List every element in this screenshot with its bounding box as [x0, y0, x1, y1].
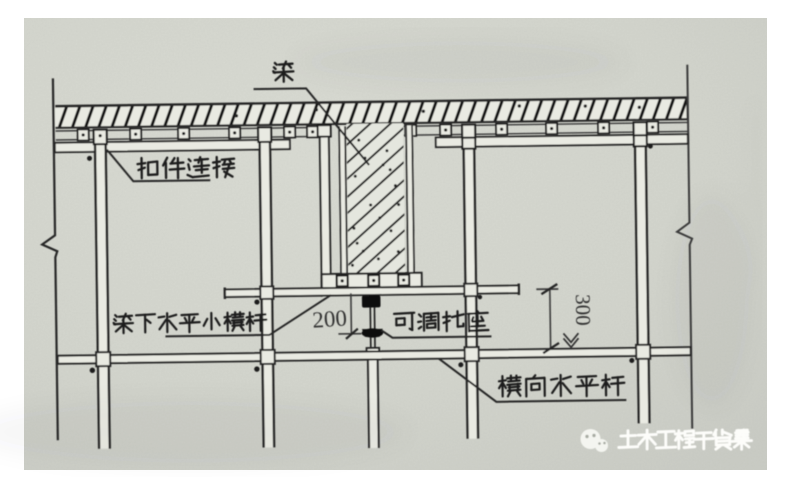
svg-text:200: 200 — [312, 305, 348, 332]
svg-text:300: 300 — [571, 294, 595, 326]
